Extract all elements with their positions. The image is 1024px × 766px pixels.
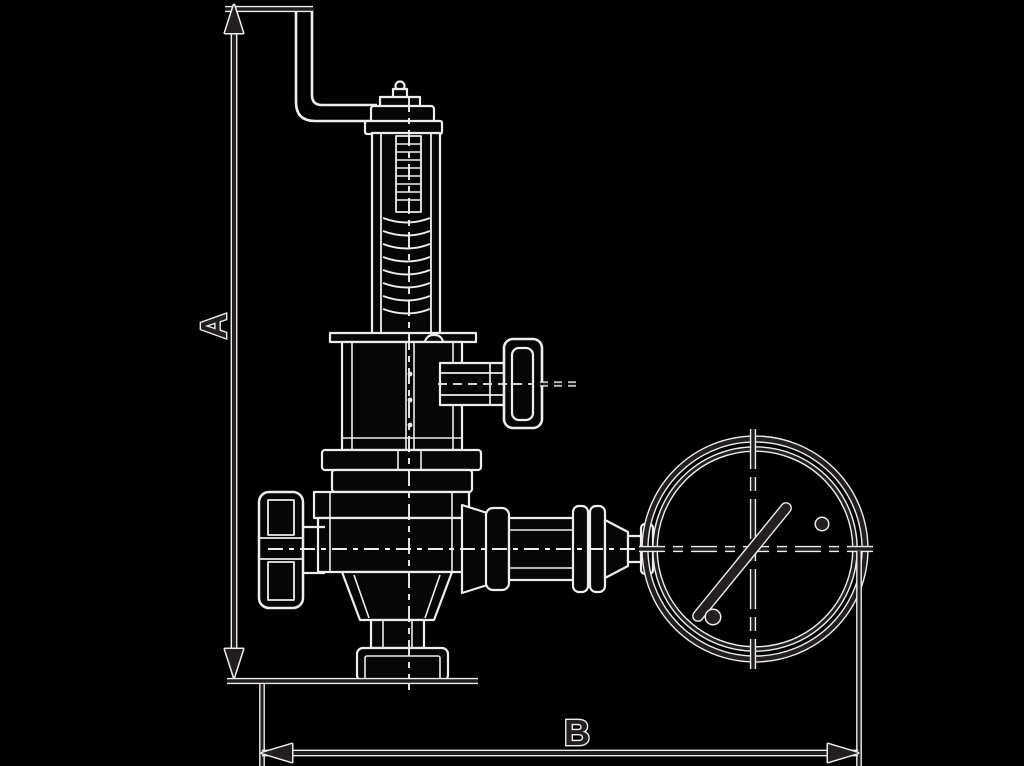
dimension-b-label: B	[564, 712, 590, 753]
drawing-canvas: A B	[0, 0, 1024, 766]
valve-assembly	[259, 9, 653, 692]
dimension-a-label: A	[193, 313, 234, 339]
valve-technical-drawing: A B	[0, 0, 1024, 766]
pressure-gauge	[639, 429, 873, 669]
